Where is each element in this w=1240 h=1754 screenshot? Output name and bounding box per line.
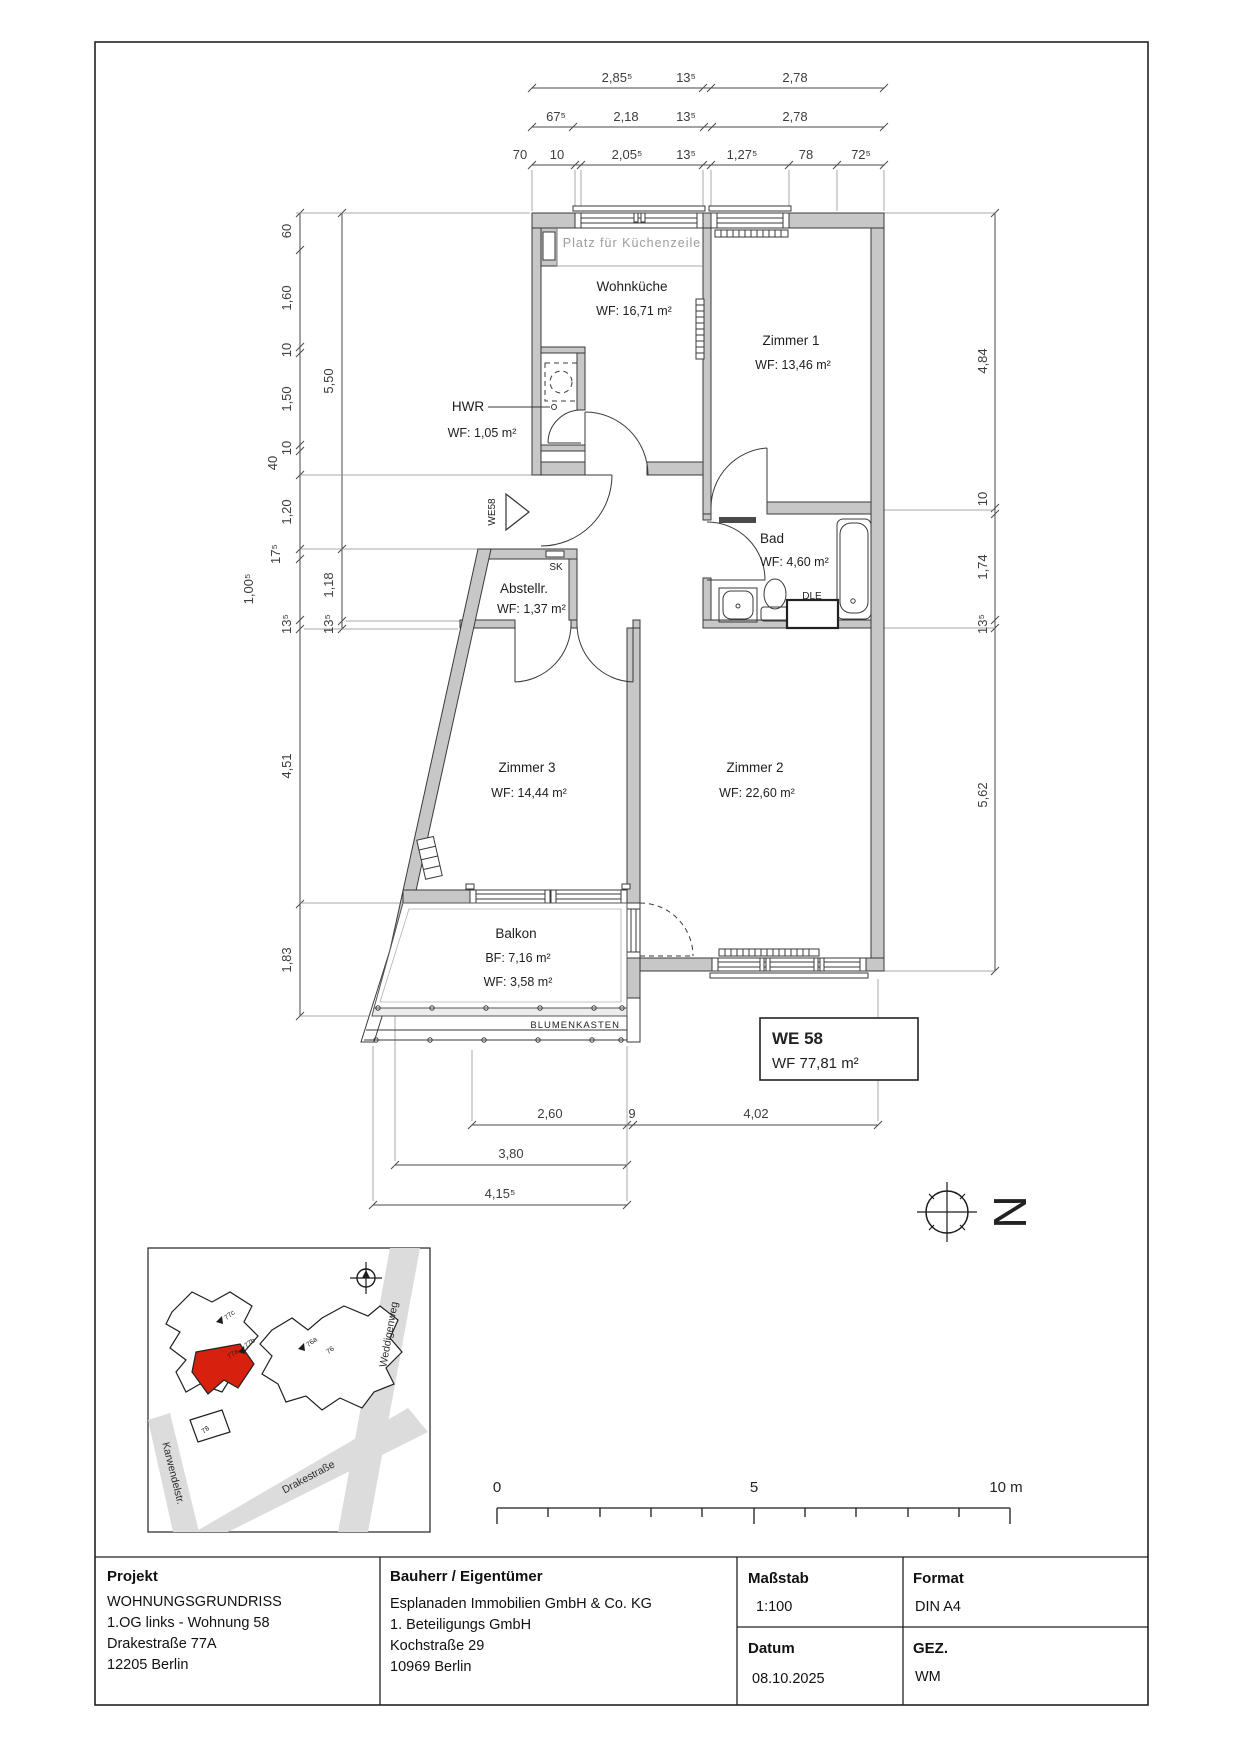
room-area-zimmer1: WF: 13,46 m² (755, 358, 831, 372)
dim-label: 2,78 (782, 70, 807, 85)
room-area-hwr: WF: 1,05 m² (448, 426, 517, 440)
dim-label: 10 (279, 343, 294, 357)
unit-id: WE 58 (772, 1029, 823, 1048)
dim-label: 67⁵ (546, 109, 566, 124)
room-name-balkon: Balkon (495, 926, 536, 941)
dim-label: 9 (628, 1106, 635, 1121)
dle-label: DLE (802, 591, 822, 602)
north-arrow: N (917, 1182, 1036, 1242)
dim-label: 5,62 (975, 782, 990, 807)
dim-label: 10 (550, 147, 564, 162)
bauherr-label: Bauherr / Eigentümer (390, 1568, 543, 1585)
dim-label: 5,50 (321, 368, 336, 393)
dim-label: 60 (279, 224, 294, 238)
room-name-hwr: HWR (452, 399, 484, 414)
dim-label: 1,00⁵ (241, 574, 256, 605)
dim-label: 13⁵ (676, 70, 696, 85)
blumenkasten-label: BLUMENKASTEN (530, 1020, 620, 1031)
balkon-door-frame (627, 903, 640, 958)
zimmer1-door (711, 448, 767, 508)
site-map: 77c 77b 77a 76a 76 78 Weddigenweg Drakes… (148, 1248, 430, 1532)
room-name-abstellraum: Abstellr. (500, 581, 548, 596)
room-name-wohnkueche: Wohnküche (596, 279, 667, 294)
dim-label: 2,85⁵ (602, 70, 633, 85)
room-area-zimmer3: WF: 14,44 m² (491, 786, 567, 800)
unit-area: WF 77,81 m² (772, 1055, 859, 1072)
radiator-wohnkueche (696, 299, 704, 359)
dim-label: 13⁵ (676, 147, 696, 162)
entry-label: WE58 (487, 498, 498, 526)
dim-label: 13⁵ (975, 614, 990, 634)
washbasin (719, 588, 757, 622)
projekt-line: Drakestraße 77A (107, 1636, 217, 1652)
dim-label: 2,05⁵ (612, 147, 643, 162)
bauherr-line: Kochstraße 29 (390, 1638, 484, 1654)
format-label: Format (913, 1570, 964, 1587)
format-value: DIN A4 (915, 1599, 961, 1615)
dim-label: 1,50 (279, 386, 294, 411)
room-name-bad: Bad (760, 531, 784, 546)
projekt-label: Projekt (107, 1568, 158, 1585)
scale-start: 0 (493, 1479, 501, 1496)
dim-label: 3,80 (498, 1146, 523, 1161)
zimmer2-door (577, 624, 633, 682)
scale-end: 10 m (989, 1479, 1022, 1496)
dim-label: 13⁵ (321, 614, 336, 634)
sk-label: SK (549, 562, 563, 573)
dim-label: 10 (279, 441, 294, 455)
bad-mirror-strip (719, 517, 756, 523)
dim-label: 70 (513, 147, 527, 162)
dim-label: 2,60 (537, 1106, 562, 1121)
massstab-value: 1:100 (756, 1599, 792, 1615)
gez-label: GEZ. (913, 1640, 948, 1657)
kitchenette-hint: Platz für Küchenzeile (563, 236, 701, 250)
dim-label: 4,84 (975, 348, 990, 373)
projekt-line: WOHNUNGSGRUNDRISS (107, 1594, 282, 1610)
dim-label: 1,18 (321, 572, 336, 597)
dim-label: 1,20 (279, 499, 294, 524)
dim-label: 2,78 (782, 109, 807, 124)
dim-label: 4,02 (743, 1106, 768, 1121)
radiator-zimmer1 (715, 230, 788, 237)
hwr-door (548, 410, 581, 443)
bathtub (837, 519, 871, 619)
dle-shaft (787, 600, 838, 628)
balkon-door-swing (640, 903, 693, 956)
massstab-label: Maßstab (748, 1570, 809, 1587)
scale-bar: 0 5 10 m (493, 1479, 1023, 1524)
dim-label: 10 (975, 492, 990, 506)
room-area-zimmer2: WF: 22,60 m² (719, 786, 795, 800)
doors (515, 410, 767, 956)
hwr-appliance (545, 363, 577, 401)
entry-marker: WE58 (487, 494, 529, 530)
kitchen-door (585, 412, 648, 475)
north-label: N (984, 1195, 1036, 1228)
drawing-sheet: 2,85⁵ 13⁵ 2,78 67⁵ 2,18 13⁵ 2,78 70 10 2… (0, 0, 1240, 1754)
bauherr-line: Esplanaden Immobilien GmbH & Co. KG (390, 1596, 652, 1612)
room-area-balkon: WF: 3,58 m² (484, 975, 553, 989)
datum-value: 08.10.2025 (752, 1671, 825, 1687)
window-balkon (466, 884, 630, 903)
scale-mid: 5 (750, 1479, 758, 1496)
dim-label: 13⁵ (676, 109, 696, 124)
dim-label: 72⁵ (851, 147, 871, 162)
dim-label: 4,51 (279, 753, 294, 778)
radiator-zimmer2 (719, 949, 819, 956)
zimmer3-door (515, 624, 571, 682)
toilet (761, 579, 789, 621)
bauherr-line: 1. Beteiligungs GmbH (390, 1617, 531, 1633)
dim-label: 17⁵ (268, 544, 283, 564)
dim-label: 13⁵ (279, 614, 294, 634)
dim-label: 78 (799, 147, 813, 162)
room-name-zimmer1: Zimmer 1 (763, 333, 820, 348)
window-zimmer2 (710, 958, 868, 978)
room-name-zimmer3: Zimmer 3 (499, 760, 556, 775)
vent-zimmer3 (417, 837, 442, 880)
dim-label: 1,60 (279, 285, 294, 310)
title-block: Projekt WOHNUNGSGRUNDRISS 1.OG links - W… (95, 1557, 1148, 1705)
floor-plan-drawing: 2,85⁵ 13⁵ 2,78 67⁵ 2,18 13⁵ 2,78 70 10 2… (0, 0, 1240, 1754)
dim-label: 1,83 (279, 947, 294, 972)
window-wohnkueche (573, 206, 705, 228)
dim-label: 4,15⁵ (485, 1186, 516, 1201)
dim-label: 1,74 (975, 554, 990, 579)
room-name-zimmer2: Zimmer 2 (727, 760, 784, 775)
room-area-bad: WF: 4,60 m² (760, 555, 829, 569)
room-bf-balkon: BF: 7,16 m² (485, 951, 550, 965)
dim-label: 40 (265, 456, 280, 470)
dim-label: 2,18 (613, 109, 638, 124)
bad-door (707, 522, 765, 580)
unit-summary-box: WE 58 WF 77,81 m² (760, 1018, 918, 1080)
room-area-abstellraum: WF: 1,37 m² (497, 602, 566, 616)
entry-door (541, 475, 612, 546)
datum-label: Datum (748, 1640, 795, 1657)
window-zimmer1 (709, 206, 791, 228)
projekt-line: 12205 Berlin (107, 1657, 188, 1673)
balcony: BLUMENKASTEN (364, 903, 627, 1042)
room-area-wohnkueche: WF: 16,71 m² (596, 304, 672, 318)
entry-arrow-icon (506, 494, 529, 530)
gez-value: WM (915, 1669, 941, 1685)
projekt-line: 1.OG links - Wohnung 58 (107, 1615, 270, 1631)
bauherr-line: 10969 Berlin (390, 1659, 471, 1675)
dim-label: 1,27⁵ (727, 147, 758, 162)
